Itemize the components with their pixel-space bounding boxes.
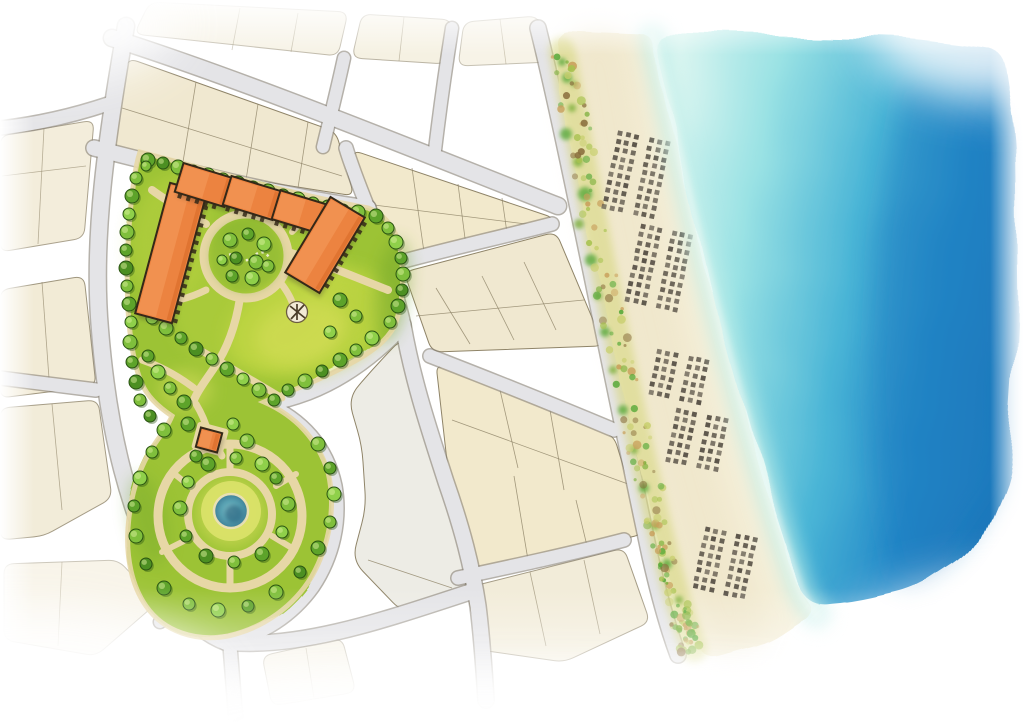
tree-highlight — [326, 518, 331, 523]
beach-lounger — [653, 155, 659, 161]
tree-highlight — [398, 286, 403, 291]
beach-lounger — [636, 194, 642, 200]
beach-lounger — [630, 272, 636, 278]
beach-lounger — [690, 420, 696, 426]
beach-lounger — [744, 535, 750, 541]
dune-speckle — [590, 179, 597, 186]
beach-lounger — [643, 292, 649, 298]
tree-highlight — [335, 295, 341, 301]
beach-lounger — [692, 373, 698, 379]
beach-lounger — [641, 258, 647, 264]
beach-lounger — [653, 243, 659, 249]
tree-highlight — [159, 159, 164, 164]
beach-lounger — [636, 282, 642, 288]
beach-lounger — [671, 272, 677, 278]
dune-speckle — [617, 315, 626, 324]
beach-lounger — [660, 165, 666, 171]
tree-highlight — [142, 560, 147, 565]
tree-highlight — [247, 273, 253, 279]
beach-lounger — [706, 561, 712, 567]
beach-lounger — [634, 134, 640, 140]
beach-lounger — [664, 305, 670, 311]
site-plan-canvas — [0, 0, 1024, 724]
beach-lounger — [673, 265, 679, 271]
beach-lounger — [668, 246, 674, 252]
tree-highlight — [259, 239, 265, 245]
beach-lounger — [656, 182, 662, 188]
dune-speckle — [620, 416, 627, 423]
beach-lounger — [618, 164, 624, 170]
tree-highlight — [283, 499, 289, 505]
dune-speckle — [617, 342, 621, 346]
beach-lounger — [661, 366, 667, 372]
beach-lounger — [750, 545, 756, 551]
beach-lounger — [672, 231, 678, 237]
beach-lounger — [686, 364, 692, 370]
beach-lounger — [713, 529, 719, 535]
beach-lounger — [672, 307, 678, 313]
beach-lounger — [683, 410, 689, 416]
beach-lounger — [649, 225, 655, 231]
dune-speckle — [611, 289, 618, 296]
dune-speckle — [614, 274, 618, 278]
dune-speckle — [596, 286, 602, 292]
tree-highlight — [326, 328, 331, 333]
beach-lounger — [710, 441, 716, 447]
beach-lounger — [705, 526, 711, 532]
tree-highlight — [153, 367, 159, 373]
beach-lounger — [743, 543, 749, 549]
beach-lounger — [651, 205, 657, 211]
beach-lounger — [683, 452, 689, 458]
beach-lounger — [661, 279, 667, 285]
beach-lounger — [674, 416, 680, 422]
beach-lounger — [653, 365, 659, 371]
tree-highlight — [397, 254, 402, 259]
beach-lounger — [674, 257, 680, 263]
beach-lounger — [624, 297, 630, 303]
beach-lounger — [633, 210, 639, 216]
dune-speckle — [644, 422, 651, 429]
tree-highlight — [326, 464, 331, 469]
beach-lounger — [690, 382, 696, 388]
beach-lounger — [652, 163, 658, 169]
dune-speckle — [633, 417, 639, 423]
dune-speckle — [593, 292, 601, 300]
beach-lounger — [708, 553, 714, 559]
beach-lounger — [663, 271, 669, 277]
beach-lounger — [677, 442, 683, 448]
beach-lounger — [676, 408, 682, 414]
tree-highlight — [229, 420, 234, 425]
beach-lounger — [687, 435, 693, 441]
beach-lounger — [679, 396, 685, 402]
dune-speckle — [591, 224, 597, 230]
beach-lounger — [610, 163, 616, 169]
dune-speckle — [658, 483, 665, 490]
beach-lounger — [705, 422, 711, 428]
tree-highlight — [270, 396, 275, 401]
beach-lounger — [669, 441, 675, 447]
dune-speckle — [580, 135, 585, 140]
beach-lounger — [720, 434, 726, 440]
beach-lounger — [688, 356, 694, 362]
beach-lounger — [676, 248, 682, 254]
tree-highlight — [125, 337, 131, 343]
tree-highlight — [251, 257, 257, 263]
dune-speckle — [627, 423, 634, 430]
dune-speckle — [648, 435, 652, 439]
dune-speckle — [590, 148, 598, 156]
dune-speckle — [630, 459, 637, 466]
tree-highlight — [173, 162, 179, 168]
beach-lounger — [658, 383, 664, 389]
beach-lounger — [634, 256, 640, 262]
dune-speckle — [620, 365, 627, 372]
beach-lounger — [646, 188, 652, 194]
beach-lounger — [716, 450, 722, 456]
beach-lounger — [669, 238, 675, 244]
beach-lounger — [702, 366, 708, 372]
beach-lounger — [673, 458, 679, 464]
beach-lounger — [655, 357, 661, 363]
beach-lounger — [657, 295, 663, 301]
beach-lounger — [671, 432, 677, 438]
tree-highlight — [391, 237, 397, 243]
beach-lounger — [607, 180, 613, 186]
beach-lounger — [612, 155, 618, 161]
beach-lounger — [638, 231, 644, 237]
beach-lounger — [696, 357, 702, 363]
beach-lounger — [640, 224, 646, 230]
dune-speckle — [643, 443, 650, 450]
beach-lounger — [650, 171, 656, 177]
beach-lounger — [679, 274, 685, 280]
beach-lounger — [739, 559, 745, 565]
beach-lounger — [691, 412, 697, 418]
beach-lounger — [687, 397, 693, 403]
dune-speckle — [579, 139, 586, 146]
tree-highlight — [146, 412, 151, 417]
tree-highlight — [352, 346, 357, 351]
beach-lounger — [625, 175, 631, 181]
beach-lounger — [668, 289, 674, 295]
beach-lounger — [638, 274, 644, 280]
dune-shrub — [574, 219, 584, 229]
dune-shrub — [609, 366, 617, 374]
tree-highlight — [239, 375, 244, 380]
beach-lounger — [697, 392, 703, 398]
dune-speckle — [554, 70, 559, 75]
beach-lounger — [694, 576, 700, 582]
beach-lounger — [632, 265, 638, 271]
beach-lounger — [623, 140, 629, 146]
beach-lounger — [660, 287, 666, 293]
dune-speckle — [657, 545, 661, 549]
dune-speckle — [652, 470, 655, 473]
beach-lounger — [633, 298, 639, 304]
beach-lounger — [682, 417, 688, 423]
tree-highlight — [329, 489, 335, 495]
beach-lounger — [653, 198, 659, 204]
dune-speckle — [634, 465, 640, 471]
beach-lounger — [743, 578, 749, 584]
dune-speckle — [563, 92, 570, 99]
tree-highlight — [124, 299, 130, 305]
beach-lounger — [658, 174, 664, 180]
beach-lounger — [654, 235, 660, 241]
beach-lounger — [715, 416, 721, 422]
dune-speckle — [633, 440, 642, 449]
dune-speckle — [652, 506, 660, 514]
beach-lounger — [646, 275, 652, 281]
beach-lounger — [684, 371, 690, 377]
tree-highlight — [278, 528, 283, 533]
beach-lounger — [642, 204, 648, 210]
dune-speckle — [572, 173, 578, 179]
beach-lounger — [666, 385, 672, 391]
dune-speckle — [659, 576, 664, 581]
beach-lounger — [609, 206, 615, 212]
dune-speckle — [581, 175, 587, 181]
beach-lounger — [663, 359, 669, 365]
tree-highlight — [225, 235, 231, 241]
tree-highlight — [122, 246, 127, 251]
beach-lounger — [708, 448, 714, 454]
tree-highlight — [136, 396, 141, 401]
beach-lounger — [618, 207, 624, 213]
beach-lounger — [688, 427, 694, 433]
beach-lounger — [669, 281, 675, 287]
dune-speckle — [644, 518, 650, 524]
beach-lounger — [622, 148, 628, 154]
tree-highlight — [166, 384, 171, 389]
dune-speckle — [613, 381, 620, 388]
beach-lounger — [640, 266, 646, 272]
tree-highlight — [143, 155, 149, 161]
beach-lounger — [664, 393, 670, 399]
tree-highlight — [159, 425, 165, 431]
beach-lounger — [646, 145, 652, 151]
beach-lounger — [681, 460, 687, 466]
beach-lounger — [616, 139, 622, 145]
tree-highlight — [386, 318, 391, 323]
dune-speckle — [584, 193, 591, 200]
beach-lounger — [703, 535, 709, 541]
dune-speckle — [604, 229, 607, 232]
beach-lounger — [649, 137, 655, 143]
beach-lounger — [683, 380, 689, 386]
beach-lounger — [647, 233, 653, 239]
beach-lounger — [675, 450, 681, 456]
beach-lounger — [667, 449, 673, 455]
dune-speckle — [631, 430, 637, 436]
beach-lounger — [654, 190, 660, 196]
tree-highlight — [177, 334, 182, 339]
dune-speckle — [650, 543, 655, 548]
dune-speckle — [581, 120, 588, 127]
dune-speckle — [564, 72, 571, 79]
beach-lounger — [630, 150, 636, 156]
beach-lounger — [685, 444, 691, 450]
dune-speckle — [623, 431, 626, 434]
tree-highlight — [179, 397, 185, 403]
beach-lounger — [729, 566, 735, 572]
beach-lounger — [648, 267, 654, 273]
tree-highlight — [371, 211, 377, 217]
tree-highlight — [232, 254, 237, 259]
dune-speckle — [631, 405, 638, 412]
tree-highlight — [182, 532, 187, 537]
tree-highlight — [230, 558, 235, 563]
beach-lounger — [623, 183, 629, 189]
tree-highlight — [222, 364, 228, 370]
beach-lounger — [677, 240, 683, 246]
dune-speckle — [610, 332, 614, 336]
beach-lounger — [657, 227, 663, 233]
dune-speckle — [619, 310, 624, 315]
beach-lounger — [632, 142, 638, 148]
tree-highlight — [192, 452, 197, 457]
beach-lounger — [677, 282, 683, 288]
dune-speckle — [590, 263, 598, 271]
beach-lounger — [700, 375, 706, 381]
dune-speckle — [583, 156, 590, 163]
beach-lounger — [713, 466, 719, 472]
dune-speckle — [594, 246, 599, 251]
beach-lounger — [641, 300, 647, 306]
beach-lounger — [657, 391, 663, 397]
beach-lounger — [626, 132, 632, 138]
beach-lounger — [628, 281, 634, 287]
tree-highlight — [135, 473, 141, 479]
beach-lounger — [735, 534, 741, 540]
beach-lounger — [643, 250, 649, 256]
tree-highlight — [393, 301, 399, 307]
beach-lounger — [682, 258, 688, 264]
beach-lounger — [648, 390, 654, 396]
tree-highlight — [183, 419, 189, 425]
beach-lounger — [723, 418, 729, 424]
beach-lounger — [704, 569, 710, 575]
beach-lounger — [643, 162, 649, 168]
dune-speckle — [667, 541, 671, 545]
dune-speckle — [640, 494, 645, 499]
beach-lounger — [651, 252, 657, 258]
beach-lounger — [642, 170, 648, 176]
dune-speckle — [624, 344, 627, 347]
beach-lounger — [737, 568, 743, 574]
beach-lounger — [619, 199, 625, 205]
beach-lounger — [710, 579, 716, 585]
beach-lounger — [719, 538, 725, 544]
beach-lounger — [612, 197, 618, 203]
beach-lounger — [702, 577, 708, 583]
dune-speckle — [649, 531, 655, 537]
tree-highlight — [208, 355, 213, 360]
beach-lounger — [701, 543, 707, 549]
beach-lounger — [645, 284, 651, 290]
tree-highlight — [284, 386, 289, 391]
tree-highlight — [144, 352, 149, 357]
beach-lounger — [696, 400, 702, 406]
dune-speckle — [604, 273, 609, 278]
dune-speckle — [565, 60, 568, 63]
dune-speckle — [589, 189, 593, 193]
beach-lounger — [673, 352, 679, 358]
dune-speckle — [557, 105, 565, 113]
watercolor-site-plan — [0, 0, 1024, 724]
dune-speckle — [610, 281, 617, 288]
beach-lounger — [617, 173, 623, 179]
dune-speckle — [623, 333, 632, 342]
dune-speckle — [656, 522, 663, 529]
beach-lounger — [608, 171, 614, 177]
beach-lounger — [689, 390, 695, 396]
tree-highlight — [300, 376, 306, 382]
beach-lounger — [650, 260, 656, 266]
beach-lounger — [605, 187, 611, 193]
dune-speckle — [551, 55, 554, 58]
beach-lounger — [704, 359, 710, 365]
beach-lounger — [747, 561, 753, 567]
dune-speckle — [655, 548, 661, 554]
tree-highlight — [228, 272, 233, 277]
beach-lounger — [620, 157, 626, 163]
beach-lounger — [655, 147, 661, 153]
tree-highlight — [201, 551, 207, 557]
dune-speckle — [575, 152, 582, 159]
beach-lounger — [638, 186, 644, 192]
beach-lounger — [681, 266, 687, 272]
dune-speckle — [585, 112, 590, 117]
beach-lounger — [649, 213, 655, 219]
dune-speckle — [579, 210, 586, 217]
dune-speckle — [588, 127, 592, 131]
tree-highlight — [121, 263, 127, 269]
tree-highlight — [313, 439, 319, 445]
tree-highlight — [398, 269, 404, 275]
beach-lounger — [711, 536, 717, 542]
beach-lounger — [698, 455, 704, 461]
tree-highlight — [131, 531, 137, 537]
beach-lounger — [713, 424, 719, 430]
beach-lounger — [648, 179, 654, 185]
dune-speckle — [600, 322, 607, 329]
dune-speckle — [654, 514, 662, 522]
beach-lounger — [666, 255, 672, 261]
beach-lounger — [696, 463, 702, 469]
tree-highlight — [244, 230, 249, 235]
beach-lounger — [670, 369, 676, 375]
beach-lounger — [718, 442, 724, 448]
beach-lounger — [704, 464, 710, 470]
beach-lounger — [706, 415, 712, 421]
beach-lounger — [714, 458, 720, 464]
beach-lounger — [637, 240, 643, 246]
dune-speckle — [586, 174, 592, 180]
beach-lounger — [717, 546, 723, 552]
dune-speckle — [634, 478, 637, 481]
dune-speckle — [586, 207, 590, 211]
beach-lounger — [627, 166, 633, 172]
beach-lounger — [675, 291, 681, 297]
dune-speckle — [606, 346, 613, 353]
beach-lounger — [614, 147, 620, 153]
beach-lounger — [695, 365, 701, 371]
beach-lounger — [671, 361, 677, 367]
dune-speckle — [639, 481, 647, 489]
